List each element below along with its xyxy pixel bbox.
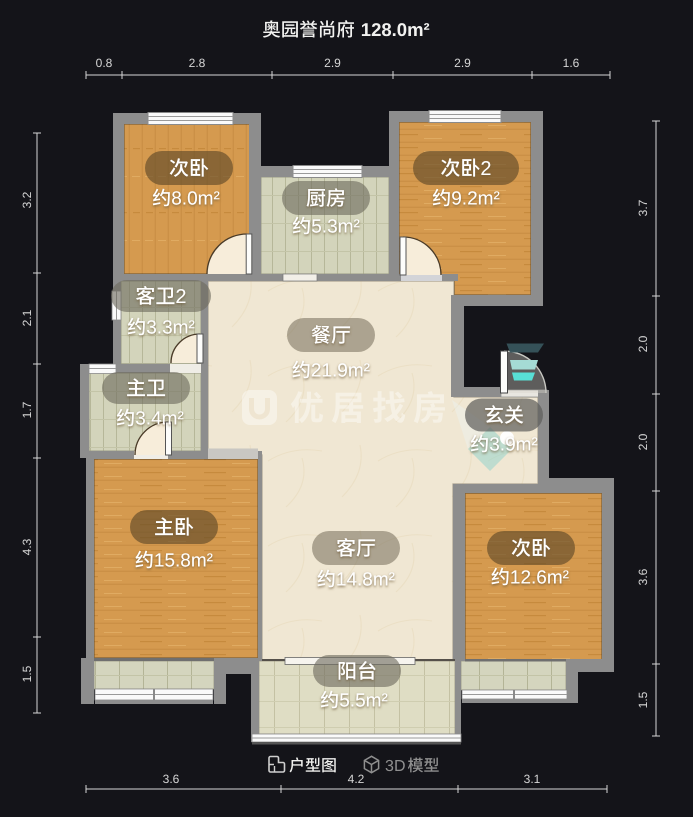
svg-text:14.8m²: 14.8m² <box>336 570 395 591</box>
svg-text:3.1: 3.1 <box>524 772 541 786</box>
svg-text:2: 2 <box>175 286 186 308</box>
svg-text:8.0m²: 8.0m² <box>171 189 220 210</box>
svg-text:1.5: 1.5 <box>20 665 34 682</box>
svg-text:2.9: 2.9 <box>324 56 341 70</box>
svg-text:5.5m²: 5.5m² <box>339 691 388 712</box>
svg-text:5.3m²: 5.3m² <box>311 217 360 238</box>
svg-text:12.6m²: 12.6m² <box>510 568 569 589</box>
svg-text:15.8m²: 15.8m² <box>154 551 213 572</box>
svg-text:2.0: 2.0 <box>636 433 650 450</box>
svg-text:3.6: 3.6 <box>163 772 180 786</box>
svg-text:3.3m²: 3.3m² <box>146 318 195 339</box>
svg-text:3.9m²: 3.9m² <box>489 435 538 456</box>
svg-text:1.5: 1.5 <box>636 691 650 708</box>
svg-text:1.6: 1.6 <box>563 56 580 70</box>
svg-text:1.7: 1.7 <box>20 401 34 418</box>
svg-text:0.8: 0.8 <box>96 56 113 70</box>
svg-text:2.9: 2.9 <box>454 56 471 70</box>
svg-text:4.3: 4.3 <box>20 538 34 555</box>
svg-text:3.2: 3.2 <box>20 191 34 208</box>
svg-text:3.7: 3.7 <box>636 199 650 216</box>
svg-text:3D: 3D <box>385 758 406 775</box>
svg-text:128.0m²: 128.0m² <box>361 19 430 40</box>
svg-text:2.1: 2.1 <box>20 309 34 326</box>
svg-text:4.2: 4.2 <box>348 772 365 786</box>
svg-text:21.9m²: 21.9m² <box>311 361 370 382</box>
svg-text:2: 2 <box>480 158 491 180</box>
svg-text:2.8: 2.8 <box>189 56 206 70</box>
svg-text:2.0: 2.0 <box>636 335 650 352</box>
svg-text:9.2m²: 9.2m² <box>451 189 500 210</box>
svg-text:3.4m²: 3.4m² <box>135 409 184 430</box>
svg-text:3.6: 3.6 <box>636 568 650 585</box>
